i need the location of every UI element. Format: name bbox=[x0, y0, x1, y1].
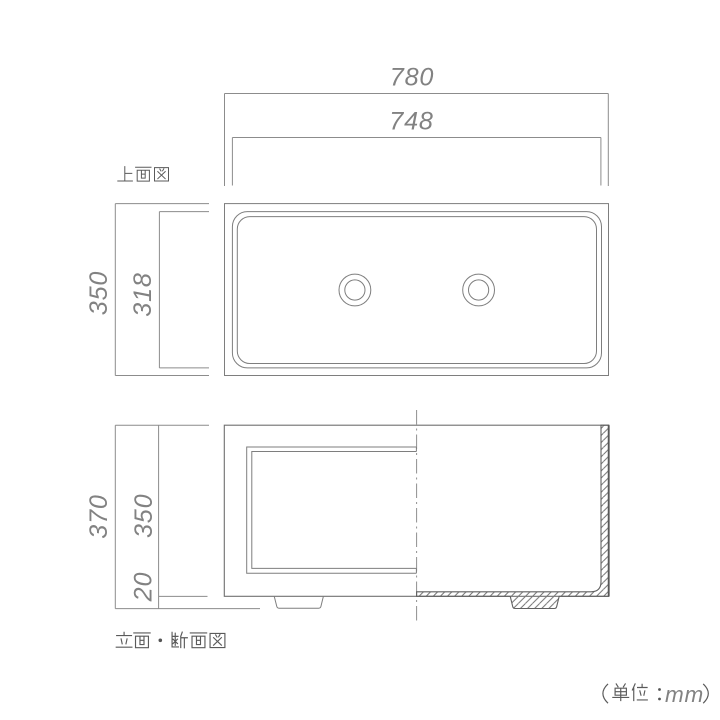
svg-text:780: 780 bbox=[390, 64, 434, 92]
svg-text:370: 370 bbox=[85, 494, 113, 538]
svg-text:748: 748 bbox=[389, 107, 433, 135]
svg-text:mm: mm bbox=[665, 682, 704, 707]
svg-text:318: 318 bbox=[129, 272, 157, 316]
svg-text:20: 20 bbox=[129, 572, 157, 603]
svg-text:350: 350 bbox=[130, 494, 158, 538]
svg-text:350: 350 bbox=[85, 271, 113, 315]
